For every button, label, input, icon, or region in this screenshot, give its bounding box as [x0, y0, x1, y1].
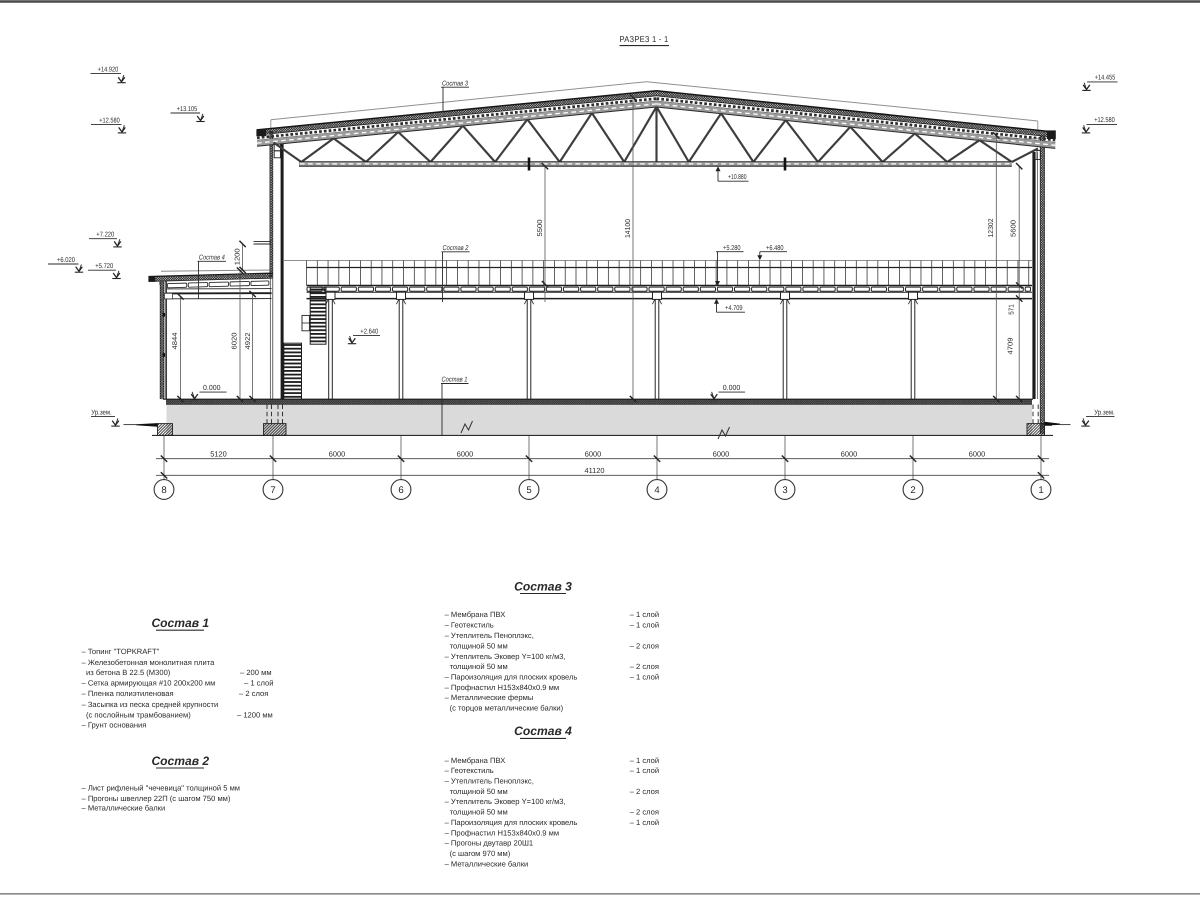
svg-text:41120: 41120 [584, 466, 604, 475]
svg-text:+13.105: +13.105 [177, 106, 198, 113]
svg-text:5600: 5600 [1010, 220, 1017, 237]
svg-text:Состав 1: Состав 1 [151, 616, 209, 630]
svg-text:3: 3 [782, 485, 787, 496]
svg-text:+12.580: +12.580 [99, 117, 120, 124]
svg-text:– 1 слой: – 1 слой [244, 679, 273, 688]
svg-text:– 1 слой: – 1 слой [630, 610, 659, 619]
svg-text:6000: 6000 [329, 449, 345, 458]
svg-text:толщиной 50 мм: толщиной 50 мм [450, 808, 508, 817]
svg-text:– Пароизоляция для плоских кро: – Пароизоляция для плоских кровель [445, 672, 578, 681]
svg-text:+6.480: +6.480 [766, 245, 784, 252]
svg-text:– Геотекстиль: – Геотекстиль [445, 620, 494, 629]
svg-text:12302: 12302 [988, 218, 995, 237]
svg-text:6000: 6000 [713, 449, 729, 458]
svg-text:+5.720: +5.720 [95, 263, 113, 270]
svg-text:5500: 5500 [537, 219, 544, 236]
svg-text:– 1 слой: – 1 слой [630, 766, 659, 775]
svg-text:– Металлические фермы: – Металлические фермы [445, 693, 534, 702]
svg-text:Ур.зем.: Ур.зем. [1094, 409, 1115, 416]
svg-text:– Утеплитель Эковер Y=100 кг/м: – Утеплитель Эковер Y=100 кг/м3, [445, 652, 566, 661]
svg-text:– 1200 мм: – 1200 мм [237, 710, 273, 719]
svg-text:0.000: 0.000 [723, 383, 741, 392]
svg-text:+14.455: +14.455 [1095, 75, 1116, 82]
svg-text:Состав 4: Состав 4 [199, 255, 225, 262]
svg-text:+5.280: +5.280 [723, 245, 741, 252]
svg-text:– Утеплитель Пеноплэкс,: – Утеплитель Пеноплэкс, [445, 631, 534, 640]
svg-text:6: 6 [398, 485, 403, 496]
svg-text:– 2 слоя: – 2 слоя [630, 787, 659, 796]
svg-text:– Профнастил Н153х840х0.9 мм: – Профнастил Н153х840х0.9 мм [445, 828, 559, 837]
svg-text:– 1 слой: – 1 слой [630, 818, 659, 827]
svg-text:– Сетка армирующая #10 200х200: – Сетка армирующая #10 200х200 мм [82, 679, 216, 688]
svg-text:4844: 4844 [172, 332, 179, 349]
svg-text:– Прогоны двутавр 20Ш1: – Прогоны двутавр 20Ш1 [445, 839, 534, 848]
svg-text:– Прогоны швеллер 22П (с шагом: – Прогоны швеллер 22П (с шагом 750 мм) [82, 794, 231, 803]
svg-text:толщиной 50 мм: толщиной 50 мм [450, 662, 508, 671]
svg-text:6020: 6020 [232, 332, 239, 349]
svg-text:+12.580: +12.580 [1094, 117, 1115, 124]
svg-text:Состав 4: Состав 4 [514, 724, 572, 738]
svg-text:7: 7 [270, 485, 275, 496]
svg-text:8: 8 [161, 485, 166, 496]
svg-text:– Мембрана ПВХ: – Мембрана ПВХ [445, 756, 506, 765]
svg-text:14100: 14100 [625, 219, 632, 238]
svg-text:Состав 2: Состав 2 [151, 754, 209, 768]
svg-text:– 1 слой: – 1 слой [630, 620, 659, 629]
svg-text:– Металлические балки: – Металлические балки [82, 804, 166, 813]
svg-text:1200: 1200 [234, 248, 241, 265]
svg-text:– Пленка полиэтиленовая: – Пленка полиэтиленовая [82, 689, 174, 698]
svg-text:– 2 слоя: – 2 слоя [630, 641, 659, 650]
svg-text:+6.020: +6.020 [57, 257, 75, 264]
svg-text:6000: 6000 [841, 449, 857, 458]
svg-text:(с послойным трамбованием): (с послойным трамбованием) [86, 710, 191, 719]
svg-text:+4.709: +4.709 [725, 305, 743, 312]
svg-text:– Профнастил Н153х840х0.9 мм: – Профнастил Н153х840х0.9 мм [445, 683, 559, 692]
svg-text:Состав 3: Состав 3 [442, 80, 468, 87]
svg-text:(с торцов металлические балки): (с торцов металлические балки) [450, 704, 564, 713]
svg-text:– 1 слой: – 1 слой [630, 756, 659, 765]
svg-text:толщиной 50 мм: толщиной 50 мм [450, 641, 508, 650]
svg-text:+7.220: +7.220 [96, 232, 114, 239]
svg-text:– Геотекстиль: – Геотекстиль [445, 766, 494, 775]
svg-text:6000: 6000 [457, 449, 473, 458]
svg-text:4922: 4922 [245, 332, 252, 349]
svg-text:из бетона В 22.5 (М300): из бетона В 22.5 (М300) [86, 668, 171, 677]
svg-text:(с шагом 970 мм): (с шагом 970 мм) [450, 849, 511, 858]
svg-text:– Мембрана ПВХ: – Мембрана ПВХ [445, 610, 506, 619]
svg-text:– Утеплитель Эковер Y=100 кг/м: – Утеплитель Эковер Y=100 кг/м3, [445, 797, 566, 806]
svg-text:– Утеплитель Пеноплэкс,: – Утеплитель Пеноплэкс, [445, 777, 534, 786]
svg-text:Ур.зем.: Ур.зем. [91, 409, 112, 416]
svg-text:РАЗРЕЗ 1 - 1: РАЗРЕЗ 1 - 1 [620, 34, 669, 44]
svg-text:6000: 6000 [585, 449, 601, 458]
svg-text:– 200 мм: – 200 мм [240, 668, 272, 677]
svg-text:571: 571 [1008, 304, 1015, 315]
svg-text:1: 1 [1038, 485, 1043, 496]
svg-text:2: 2 [910, 485, 915, 496]
svg-text:– Топинг "TOPKRAFT": – Топинг "TOPKRAFT" [82, 647, 160, 656]
svg-text:– 1 слой: – 1 слой [630, 672, 659, 681]
svg-text:– 2 слоя: – 2 слоя [630, 662, 659, 671]
svg-text:6000: 6000 [969, 449, 985, 458]
svg-text:– 2 слоя: – 2 слоя [239, 689, 268, 698]
svg-text:+2.640: +2.640 [360, 329, 378, 336]
svg-text:– Грунт основания: – Грунт основания [82, 721, 147, 730]
svg-text:+10.880: +10.880 [728, 174, 747, 181]
svg-text:0.000: 0.000 [203, 383, 221, 392]
svg-text:– Металлические балки: – Металлические балки [445, 859, 529, 868]
svg-text:– Лист рифленый "чечевица" тол: – Лист рифленый "чечевица" толщиной 5 мм [82, 784, 241, 793]
svg-text:5: 5 [526, 485, 531, 496]
svg-text:Состав 1: Состав 1 [442, 377, 468, 384]
svg-text:4709: 4709 [1007, 337, 1014, 354]
svg-text:4: 4 [654, 485, 660, 496]
svg-text:– Пароизоляция для плоских кро: – Пароизоляция для плоских кровель [445, 818, 578, 827]
svg-text:– 2 слоя: – 2 слоя [630, 808, 659, 817]
svg-text:5120: 5120 [210, 449, 226, 458]
svg-text:+14.920: +14.920 [98, 66, 119, 73]
svg-text:Состав 3: Состав 3 [514, 579, 572, 593]
svg-text:– Железобетонная монолитная п: – Железобетонная монолитная плита [82, 658, 216, 667]
svg-text:– Засыпка из песка средней кру: – Засыпка из песка средней крупности [82, 700, 219, 709]
svg-text:толщиной 50 мм: толщиной 50 мм [450, 787, 508, 796]
svg-text:Состав 2: Состав 2 [443, 245, 469, 252]
